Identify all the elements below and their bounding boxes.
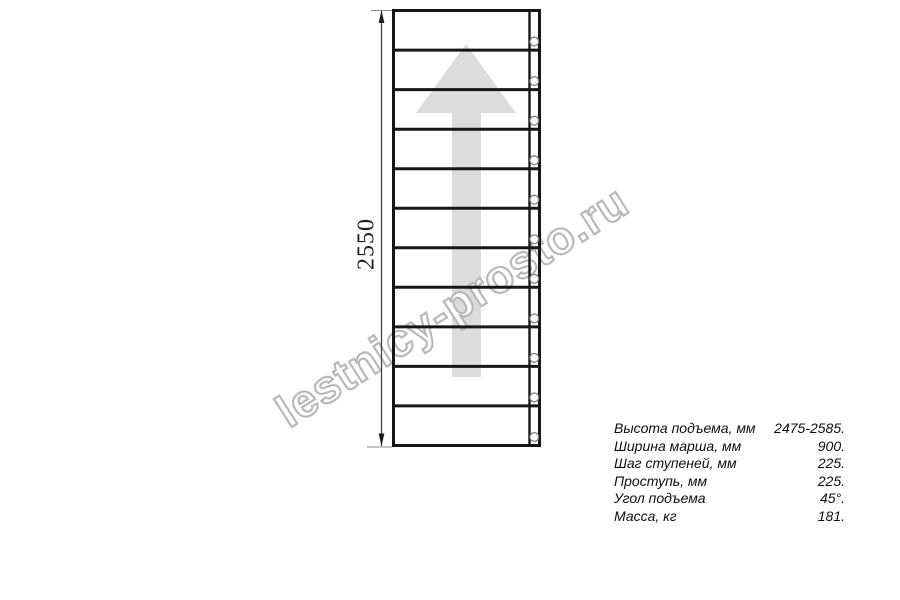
- bolt-circles: [530, 37, 539, 441]
- spec-value: 225.: [818, 473, 845, 491]
- spec-value: 181.: [818, 508, 845, 526]
- spec-label: Угол подъема: [614, 490, 706, 508]
- bolt-circle-icon: [530, 314, 539, 323]
- bolt-circle-icon: [530, 77, 539, 86]
- specs-table: Высота подъема, мм 2475-2585. Ширина мар…: [614, 420, 845, 526]
- spec-row-tread-depth: Проступь, мм 225.: [614, 473, 845, 491]
- spec-row-step-pitch: Шаг ступеней, мм 225.: [614, 455, 845, 473]
- dimension-arrow-bottom-icon: [379, 434, 385, 447]
- spec-label: Ширина марша, мм: [614, 438, 741, 456]
- bolt-circle-icon: [530, 433, 539, 442]
- bolt-circle-icon: [530, 195, 539, 204]
- bolt-circle-icon: [530, 235, 539, 244]
- spec-label: Масса, кг: [614, 508, 677, 526]
- spec-value: 225.: [818, 455, 845, 473]
- spec-value: 45°.: [820, 490, 845, 508]
- bolt-circle-icon: [530, 354, 539, 363]
- spec-value: 2475-2585.: [774, 420, 845, 438]
- spec-row-flight-width: Ширина марша, мм 900.: [614, 438, 845, 456]
- bolt-circle-icon: [530, 274, 539, 283]
- spec-value: 900.: [818, 438, 845, 456]
- spec-row-rise-angle: Угол подъема 45°.: [614, 490, 845, 508]
- bolt-circle-icon: [530, 37, 539, 46]
- spec-row-height: Высота подъема, мм 2475-2585.: [614, 420, 845, 438]
- dimension-height-label: 2550: [354, 192, 380, 297]
- tread-lines: [393, 50, 541, 406]
- spec-label: Шаг ступеней, мм: [614, 455, 737, 473]
- stair-flight-outline: [394, 11, 540, 446]
- spec-label: Проступь, мм: [614, 473, 707, 491]
- bolt-circle-icon: [530, 393, 539, 402]
- spec-label: Высота подъема, мм: [614, 420, 756, 438]
- dimension-arrow-top-icon: [379, 11, 385, 24]
- bolt-circle-icon: [530, 116, 539, 125]
- bolt-circle-icon: [530, 156, 539, 165]
- spec-row-mass: Масса, кг 181.: [614, 508, 845, 526]
- stairs-drawing-page: lestnicy-prosto.ru: [0, 0, 900, 600]
